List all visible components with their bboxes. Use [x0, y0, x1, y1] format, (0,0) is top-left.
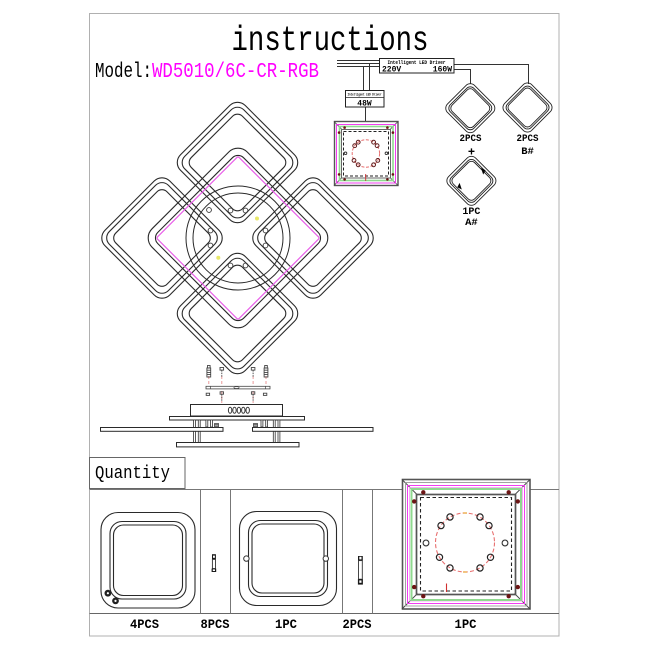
svg-text:2PCS: 2PCS: [517, 134, 539, 145]
svg-text:A#: A#: [465, 217, 478, 229]
svg-text:Quantity: Quantity: [95, 464, 170, 484]
svg-text:instructions: instructions: [232, 21, 429, 61]
svg-text:+: +: [468, 146, 475, 160]
svg-text:1PC: 1PC: [455, 617, 477, 632]
svg-text:2PCS: 2PCS: [460, 134, 482, 145]
svg-text:Model:WD5010/6C-CR-RGB: Model:WD5010/6C-CR-RGB: [95, 61, 319, 84]
svg-text:2PCS: 2PCS: [343, 617, 372, 632]
svg-text:8PCS: 8PCS: [201, 617, 230, 632]
svg-text:1PC: 1PC: [275, 617, 297, 632]
svg-text:4PCS: 4PCS: [130, 617, 159, 632]
svg-text:220V: 220V: [382, 66, 401, 75]
svg-text:Intelligent LED Driver: Intelligent LED Driver: [348, 93, 382, 98]
svg-text:160W: 160W: [433, 66, 452, 75]
svg-text:B#: B#: [521, 146, 534, 158]
svg-text:48W: 48W: [357, 100, 372, 109]
